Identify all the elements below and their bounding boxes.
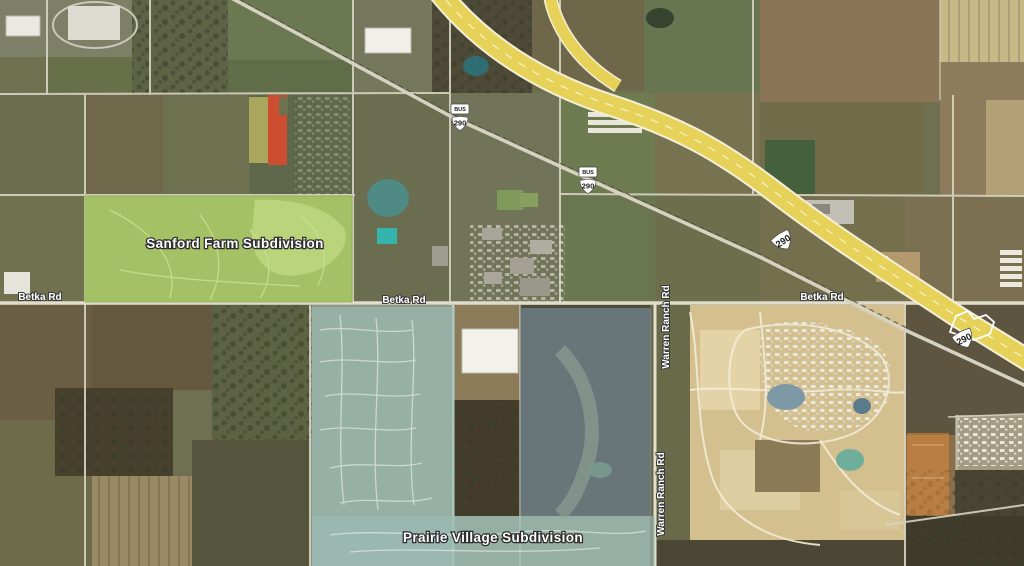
parcel-olive: [249, 97, 268, 163]
label-prairie-village-subdivision: Prairie Village Subdivision: [403, 530, 583, 545]
label-warren-ranch-rd-north: Warren Ranch Rd: [661, 285, 672, 369]
overlay-highlight-parcels-north: [249, 95, 288, 165]
parcel-notch: [279, 97, 288, 115]
label-sanford-farm-subdivision: Sanford Farm Subdivision: [146, 236, 324, 251]
shield-text: BUS: [454, 107, 466, 113]
label-warren-ranch-rd-south: Warren Ranch Rd: [656, 452, 667, 536]
house-cluster: [958, 418, 1022, 466]
route-shield-bus-banner: BUS: [579, 167, 597, 177]
label-betka-rd-west: Betka Rd: [18, 292, 61, 303]
shield-text: 290: [454, 119, 467, 128]
label-betka-rd-east: Betka Rd: [800, 292, 843, 303]
label-betka-rd-center: Betka Rd: [382, 295, 425, 306]
pond: [767, 384, 805, 410]
route-shield-bus-banner: BUS: [451, 104, 469, 114]
shield-text: 290: [582, 182, 595, 191]
overlay-parcel-orange: [907, 433, 949, 515]
map-viewport[interactable]: BUS 290 BUS 290 290 290 Sanford Farm Sub…: [0, 0, 1024, 566]
lagoon: [836, 449, 864, 471]
shield-text: BUS: [582, 170, 594, 176]
satellite-map: BUS 290 BUS 290 290 290 Sanford Farm Sub…: [0, 0, 1024, 566]
pond: [853, 398, 871, 414]
